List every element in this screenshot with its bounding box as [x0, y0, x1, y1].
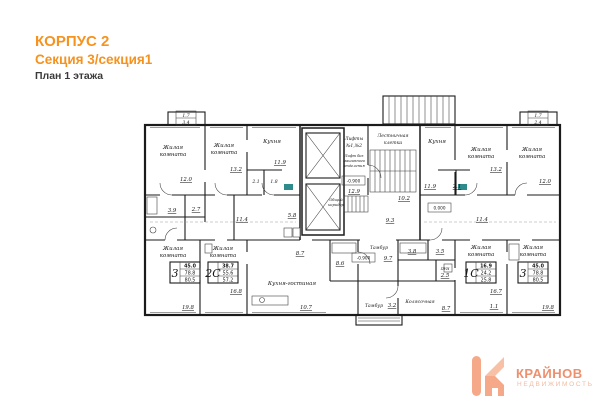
room-area: 12.0 — [180, 177, 193, 183]
level-mark-tambour: -0.900 — [357, 256, 371, 261]
room-living-3: Жилая комната 13.2 — [468, 147, 503, 173]
balcony-left-values: 1.7 3.4 — [176, 111, 196, 126]
stamp-value: 80.5 — [533, 278, 544, 284]
room-area: 12.9 — [348, 189, 361, 195]
apartment-stamp-1: 3 45.0 78.8 80.5 — [170, 262, 200, 284]
entrance-stairs — [383, 96, 455, 124]
lift-note: машинного — [343, 159, 366, 163]
lift-note: Лифт без — [344, 154, 364, 158]
room-area: 10.7 — [300, 305, 313, 311]
stamp-value: 57.2 — [223, 278, 234, 284]
lift-label: №1,№2 — [345, 143, 362, 149]
dim-balcony-right-2: 2.4 — [533, 120, 541, 126]
room-label: комната — [468, 154, 495, 160]
room-area: 5.8 — [288, 213, 297, 219]
room-area: 2.5 — [440, 273, 450, 279]
room-label: комната — [210, 253, 237, 259]
room-living-4: Жилая комната 12.0 — [519, 147, 552, 185]
room-area: 11.9 — [424, 184, 437, 190]
room-area: 8.6 — [336, 261, 345, 267]
lift-lobby: Лифты №1,№2 Лифт без машинного отделения… — [342, 135, 366, 195]
room-area: 13.2 — [230, 167, 243, 173]
floor-plan-drawing: 1.7 3.4 1.7 2.4 Жилая комната 12.0 Жилая… — [0, 0, 605, 403]
stamp-type: 3 — [520, 267, 527, 280]
room-label: комната — [468, 252, 495, 258]
room-area: 3.8 — [408, 249, 417, 255]
room-label: Жилая — [162, 145, 184, 151]
room-label: комната — [160, 253, 187, 259]
room-area: 3.9 — [168, 208, 177, 214]
room-area: 9.3 — [386, 218, 395, 224]
room-label: Жилая — [522, 245, 544, 251]
stair-label: клетка — [384, 141, 402, 146]
stroller-room: Колясочная 8.7 — [404, 299, 451, 312]
room-label: Кухня-гостиная — [267, 281, 317, 287]
dim-balcony-left-2: 3.4 — [182, 120, 189, 126]
stamp-value: 25.8 — [481, 278, 492, 284]
level-mark-lobby: -0.900 — [347, 179, 361, 184]
room-area: 19.8 — [542, 305, 555, 311]
room-area: 8.7 — [442, 306, 451, 312]
room-area: 8.7 — [296, 251, 305, 257]
stamp-value: 24.2 — [481, 271, 492, 277]
room-area: 2.1 — [251, 179, 259, 185]
level-mark-corridor: 0.000 — [434, 206, 446, 211]
lift-label: Лифты — [344, 135, 364, 142]
room-label: Кухня — [262, 139, 281, 145]
stamp-value: 16.9 — [480, 264, 492, 270]
room-kitchen-left: Кухня 11.9 — [262, 139, 286, 166]
middle-band-labels: 3.9 2.7 11.4 5.8 Общий коридор 9.3 0.000… — [168, 184, 489, 224]
room-label: Жилая — [521, 147, 543, 153]
stairwell-labels: Лестничная клетка 10.2 — [376, 133, 410, 202]
dim-balcony-left-1: 1.7 — [182, 113, 189, 119]
room-label: Жилая — [470, 245, 492, 251]
room-area: 2.7 — [191, 207, 201, 213]
apartment-stamp-4: 3 45.0 78.8 80.5 — [518, 262, 548, 284]
outer-walls — [145, 112, 560, 315]
room-area: 2.1 — [452, 184, 462, 190]
room-area: 16.7 — [490, 289, 503, 295]
logo-subtitle: НЕДВИЖИМОСТЬ — [517, 381, 594, 388]
stamp-value: 45.0 — [532, 264, 544, 270]
room-label: комната — [520, 252, 547, 258]
room-label: комната — [519, 154, 546, 160]
dim-balcony-right-1: 1.7 — [534, 113, 541, 119]
stamp-value: 78.8 — [533, 271, 544, 277]
logo-house-k-icon — [470, 350, 512, 400]
room-area: 11.4 — [236, 217, 249, 223]
lift-note: отделения — [343, 164, 365, 168]
room-area: 1.8 — [270, 179, 277, 185]
stamp-type: 3 — [172, 267, 179, 280]
stroller-label: Колясочная — [404, 299, 434, 305]
room-label: комната — [211, 150, 238, 156]
room-area: 11.4 — [476, 217, 489, 223]
room-area: 12.0 — [539, 179, 552, 185]
room-area: 9.7 — [384, 256, 393, 262]
corridor-label: коридор — [328, 203, 344, 207]
stair-label: Лестничная — [376, 133, 408, 139]
room-living-1: Жилая комната 12.0 — [160, 145, 193, 183]
balcony-right-values: 1.7 2.4 — [528, 111, 548, 126]
tambour-label: Тамбур — [365, 302, 383, 309]
tambour-label: Тамбур — [370, 244, 388, 251]
stamp-type: 2С — [204, 267, 221, 280]
stamp-value: 80.5 — [185, 278, 196, 284]
room-kitchen-right: Кухня 11.9 — [424, 139, 446, 190]
stamp-value: 55.6 — [223, 271, 234, 277]
logo-name: КРАЙНОВ — [516, 366, 583, 381]
room-area: 3.5 — [436, 249, 445, 255]
stamp-type: 1С — [463, 267, 479, 280]
room-label: Кухня — [427, 139, 446, 145]
room-label: Жилая — [213, 143, 235, 149]
room-area: 13.2 — [490, 167, 503, 173]
room-label: комната — [160, 152, 187, 158]
room-area: 11.9 — [274, 160, 287, 166]
room-label: Жилая — [162, 246, 184, 252]
company-logo: КРАЙНОВ НЕДВИЖИМОСТЬ — [470, 350, 605, 400]
stamp-value: 78.8 — [185, 271, 196, 277]
corridor-label: Общий — [329, 198, 343, 202]
pui-label: ПУИ — [440, 267, 451, 271]
room-label: Жилая — [470, 147, 492, 153]
stamp-value: 45.0 — [184, 264, 196, 270]
stamp-value: 38.7 — [222, 264, 234, 270]
apartment-stamp-2: 2С 38.7 55.6 57.2 — [204, 262, 238, 284]
room-area: 19.8 — [182, 305, 195, 311]
interior-walls-bottom — [145, 195, 560, 315]
room-area: 16.8 — [230, 289, 243, 295]
tambour-bottom: Тамбур 3.2 — [365, 302, 397, 309]
room-area: 1.1 — [490, 304, 499, 310]
entrance-porch — [356, 315, 402, 325]
room-area: 3.2 — [388, 303, 397, 309]
room-area: 10.2 — [398, 196, 411, 202]
apartment-stamp-3: 1С 16.9 24.2 25.8 — [463, 262, 496, 284]
room-living-2: Жилая комната 13.2 — [211, 143, 243, 173]
room-label: Жилая — [212, 246, 234, 252]
